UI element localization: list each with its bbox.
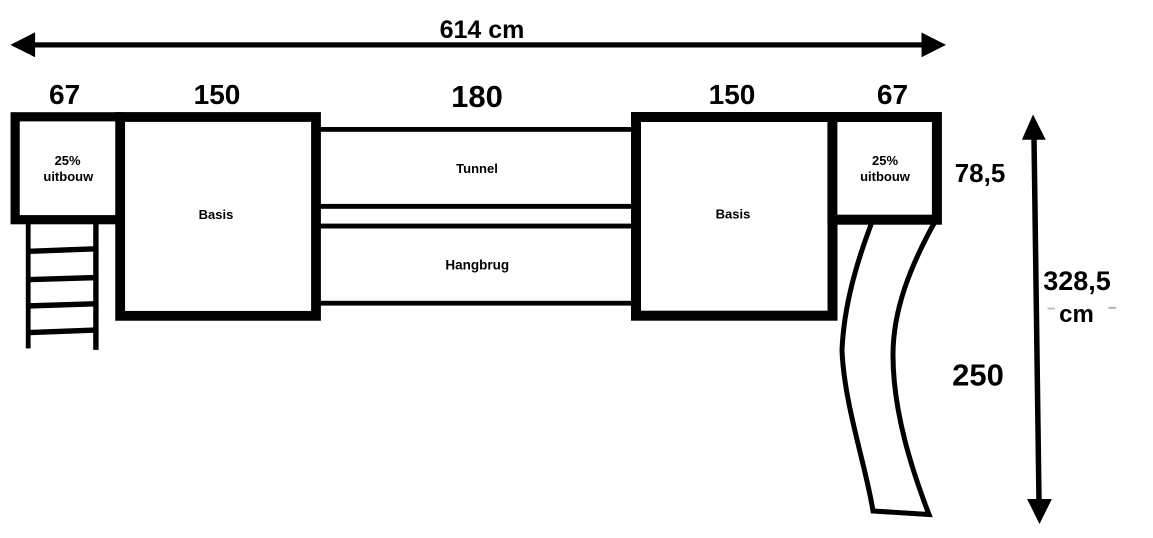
svg-text:67: 67 xyxy=(877,79,908,110)
svg-text:150: 150 xyxy=(709,79,756,110)
svg-text:Basis: Basis xyxy=(199,207,234,222)
svg-text:uitbouw: uitbouw xyxy=(860,169,911,184)
svg-text:328,5: 328,5 xyxy=(1043,266,1111,296)
svg-text:Hangbrug: Hangbrug xyxy=(445,258,509,273)
svg-text:Tunnel: Tunnel xyxy=(456,161,498,176)
svg-text:180: 180 xyxy=(451,79,503,114)
svg-text:Basis: Basis xyxy=(716,207,751,222)
svg-text:25%: 25% xyxy=(872,153,898,168)
svg-text:614 cm: 614 cm xyxy=(440,16,525,44)
svg-text:25%: 25% xyxy=(55,153,81,168)
svg-text:250: 250 xyxy=(952,358,1004,393)
svg-text:cm: cm xyxy=(1059,301,1094,328)
svg-text:78,5: 78,5 xyxy=(955,158,1006,188)
svg-text:150: 150 xyxy=(194,79,241,110)
svg-text:67: 67 xyxy=(49,79,80,110)
svg-text:uitbouw: uitbouw xyxy=(43,169,94,184)
